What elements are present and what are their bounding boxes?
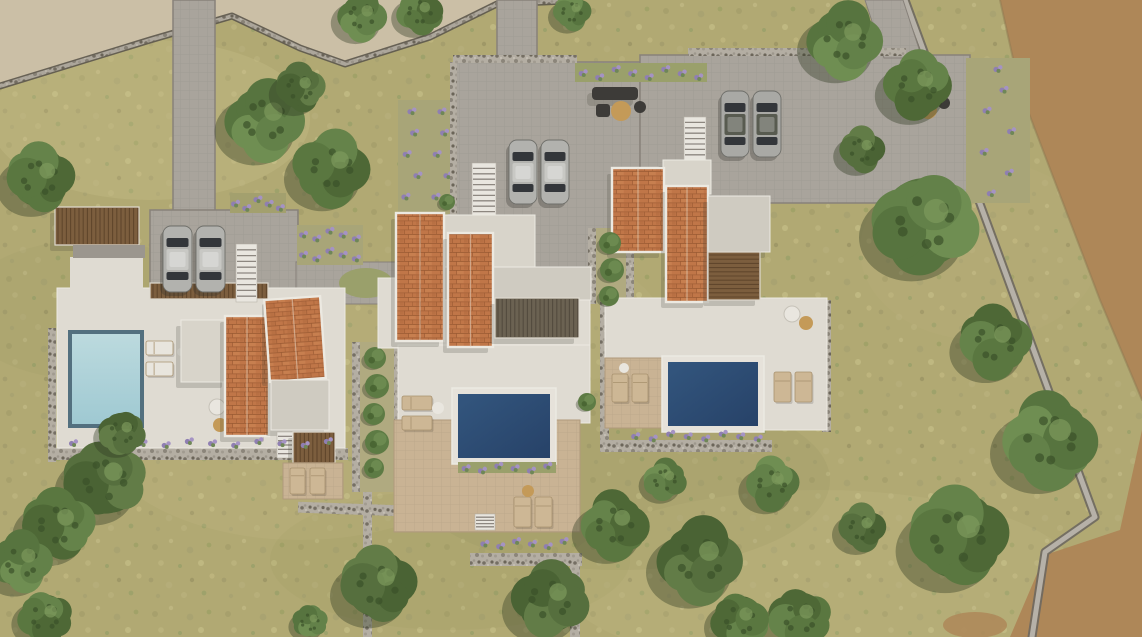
villa1-carport [50,207,139,251]
villa1-carport-pad [73,245,145,258]
villa3-car [750,91,781,161]
villa3-round-table [799,316,813,330]
stone-wall [600,440,772,452]
garden-bed-villa3-east [966,58,1030,203]
villa1-car [160,226,192,296]
villa2-steps-south [475,514,495,530]
villa3-flat-roof-east [703,196,770,258]
villa1-flat-roof-south [266,380,329,436]
villa2-patio-lounger [535,497,554,529]
villa3-side-table [619,363,629,373]
villa3-car [718,91,749,161]
villa1-tiled-roof-main [220,316,269,442]
villa3-pool [668,362,758,426]
villa1-flat-roof-west [176,320,227,388]
villa2-planter [458,462,556,473]
villa2-coffee-table [611,101,631,121]
villa3-balcony-pergola [703,252,760,306]
villa3-lounger-east [795,372,814,404]
villa1-tiled-roof-upper [262,296,326,386]
villa2-pouf [634,101,646,113]
villa2-car [506,140,537,208]
villa2-lounger [402,416,434,432]
villa1-lounger [146,341,175,357]
villa1-pool [72,334,140,424]
aerial-render-canvas [0,0,1142,637]
site-plan-rendering [0,0,1142,637]
villa2-car [538,140,569,208]
villa2-lounger [402,396,434,412]
villa1-patio-lounger [290,468,307,496]
villa2-tiled-roof-mid [443,233,493,353]
villa2-side-table [432,402,444,414]
villa3-tiled-roof-main [661,186,708,308]
dirt-patch [943,612,1007,637]
villa2-tiled-roof-west [391,213,444,347]
villa2-patio-lounger [514,497,533,529]
villa3-round-table [784,306,800,322]
garden-bed-villa2-north [575,63,707,82]
villa1-terrace-north [70,257,143,289]
villa2-armchair [596,104,610,117]
villa1-patio-lounger [310,468,327,496]
stone-wall [352,342,360,492]
driveway-villa1 [173,0,215,218]
villa2-pool [458,394,550,458]
stone-wall [48,328,56,462]
villa1-lounger [146,362,175,378]
villa2-patio-table [522,485,534,497]
villa2-outdoor-sofa [587,87,638,106]
stone-wall [453,55,577,63]
villa3-lounger [632,374,650,404]
villa3-lounger-east [774,372,793,404]
villa2-stairs [472,163,496,217]
villa2-dining-pergola [490,298,579,344]
villa3-lounger [612,374,630,404]
villa1-car [193,226,225,296]
villa1-stairs-parking [236,244,257,302]
